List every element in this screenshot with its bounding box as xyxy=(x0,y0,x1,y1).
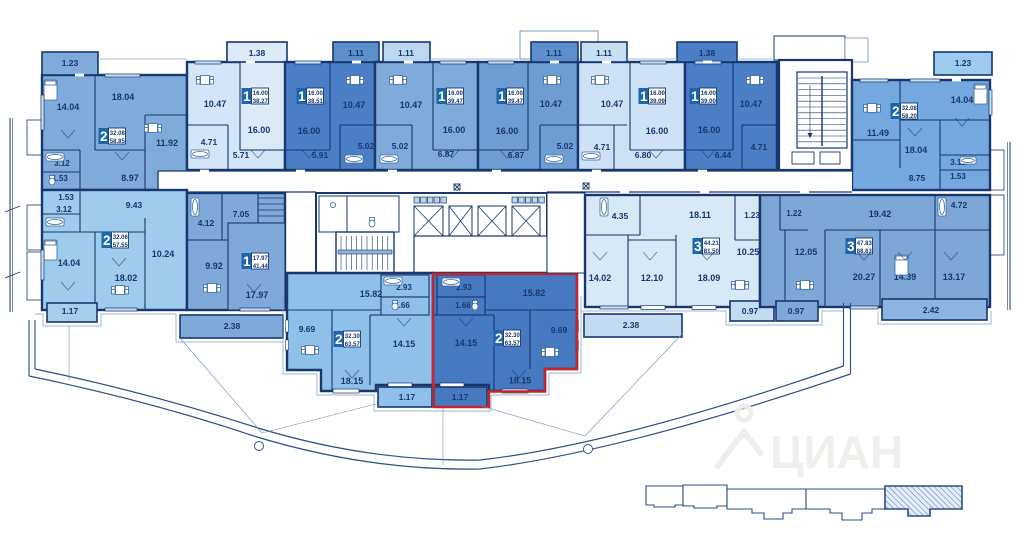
svg-text:1.22: 1.22 xyxy=(786,209,802,218)
svg-text:18.04: 18.04 xyxy=(905,145,928,155)
svg-text:1.11: 1.11 xyxy=(546,48,562,58)
svg-text:39.00: 39.00 xyxy=(701,99,717,105)
svg-text:39.09: 39.09 xyxy=(650,99,666,105)
svg-text:0.97: 0.97 xyxy=(788,306,805,316)
svg-text:1: 1 xyxy=(498,89,506,104)
svg-text:32.30: 32.30 xyxy=(505,333,521,339)
svg-text:32.08: 32.08 xyxy=(110,131,126,137)
svg-text:9.43: 9.43 xyxy=(126,200,143,210)
svg-text:58.85: 58.85 xyxy=(110,139,126,145)
svg-text:1.11: 1.11 xyxy=(398,48,414,58)
svg-text:44.21: 44.21 xyxy=(704,241,720,247)
svg-text:2: 2 xyxy=(495,331,503,346)
svg-text:16.00: 16.00 xyxy=(496,126,519,136)
svg-text:8.75: 8.75 xyxy=(909,173,926,183)
svg-text:1: 1 xyxy=(243,254,251,269)
svg-text:1.66: 1.66 xyxy=(455,301,471,310)
svg-text:16.00: 16.00 xyxy=(701,91,717,97)
svg-text:14.04: 14.04 xyxy=(58,258,81,268)
svg-text:16.00: 16.00 xyxy=(448,91,464,97)
svg-text:12.05: 12.05 xyxy=(795,247,818,257)
svg-text:18.11: 18.11 xyxy=(689,210,711,220)
svg-text:16.00: 16.00 xyxy=(650,91,666,97)
svg-text:12.10: 12.10 xyxy=(641,273,664,283)
svg-text:1: 1 xyxy=(243,89,251,104)
svg-text:15.82: 15.82 xyxy=(523,288,546,298)
svg-text:41.44: 41.44 xyxy=(253,264,269,270)
svg-text:10.47: 10.47 xyxy=(740,99,763,109)
svg-text:16.00: 16.00 xyxy=(253,91,269,97)
svg-text:1: 1 xyxy=(438,89,446,104)
svg-text:81.50: 81.50 xyxy=(704,249,720,255)
svg-text:5.02: 5.02 xyxy=(392,141,409,151)
svg-text:32.30: 32.30 xyxy=(345,334,361,340)
svg-text:14.04: 14.04 xyxy=(57,102,80,112)
svg-text:4.72: 4.72 xyxy=(951,200,968,210)
svg-text:3: 3 xyxy=(847,239,855,254)
svg-text:16.00: 16.00 xyxy=(308,91,324,97)
svg-text:58.20: 58.20 xyxy=(902,114,918,120)
svg-text:1.38: 1.38 xyxy=(249,48,266,58)
svg-text:16.00: 16.00 xyxy=(698,125,721,135)
svg-text:2.38: 2.38 xyxy=(224,321,241,331)
svg-text:18.15: 18.15 xyxy=(341,376,364,386)
svg-text:2: 2 xyxy=(335,332,343,347)
svg-text:10.47: 10.47 xyxy=(343,100,366,110)
svg-text:14.02: 14.02 xyxy=(589,273,612,283)
svg-text:9.92: 9.92 xyxy=(205,261,223,271)
svg-text:1.38: 1.38 xyxy=(699,48,716,58)
svg-text:2: 2 xyxy=(892,104,900,119)
svg-text:16.00: 16.00 xyxy=(298,126,321,136)
svg-text:2: 2 xyxy=(103,233,111,248)
svg-text:10.47: 10.47 xyxy=(540,99,563,109)
svg-text:9.69: 9.69 xyxy=(299,324,316,334)
svg-text:4.71: 4.71 xyxy=(751,142,768,152)
svg-text:38.27: 38.27 xyxy=(253,99,269,105)
svg-text:1.53: 1.53 xyxy=(58,193,74,202)
svg-text:6.80: 6.80 xyxy=(635,150,652,160)
svg-text:1.23: 1.23 xyxy=(955,58,972,68)
svg-text:14.15: 14.15 xyxy=(393,339,416,349)
svg-text:4.35: 4.35 xyxy=(612,211,629,221)
svg-text:11.92: 11.92 xyxy=(156,138,178,148)
svg-text:16.00: 16.00 xyxy=(646,126,669,136)
svg-text:16.00: 16.00 xyxy=(508,91,524,97)
svg-text:2.42: 2.42 xyxy=(923,305,940,315)
svg-text:4.71: 4.71 xyxy=(594,142,611,152)
svg-text:1: 1 xyxy=(640,89,648,104)
svg-text:1.23: 1.23 xyxy=(744,211,760,220)
svg-text:19.42: 19.42 xyxy=(869,209,892,219)
svg-text:10.47: 10.47 xyxy=(400,100,423,110)
svg-text:39.47: 39.47 xyxy=(448,99,464,105)
svg-text:1.17: 1.17 xyxy=(62,306,79,316)
svg-text:3.12: 3.12 xyxy=(56,205,72,214)
svg-text:16.00: 16.00 xyxy=(248,125,271,135)
svg-text:1.11: 1.11 xyxy=(348,48,364,58)
svg-text:9.69: 9.69 xyxy=(551,325,568,335)
svg-text:1.11: 1.11 xyxy=(596,48,612,58)
svg-text:47.83: 47.83 xyxy=(857,241,873,247)
svg-text:18.02: 18.02 xyxy=(115,273,138,283)
svg-text:88.63: 88.63 xyxy=(857,249,873,255)
svg-text:5.71: 5.71 xyxy=(233,150,250,160)
svg-text:10.47: 10.47 xyxy=(204,99,227,109)
svg-text:5.02: 5.02 xyxy=(358,141,375,151)
svg-text:2: 2 xyxy=(100,129,108,144)
svg-text:4.12: 4.12 xyxy=(198,218,215,228)
svg-text:1.23: 1.23 xyxy=(62,58,79,68)
svg-text:10.25: 10.25 xyxy=(737,247,760,257)
svg-text:0.97: 0.97 xyxy=(742,306,759,316)
svg-text:32.06: 32.06 xyxy=(113,235,129,241)
svg-text:5.02: 5.02 xyxy=(557,141,574,151)
svg-text:14.04: 14.04 xyxy=(951,95,974,105)
svg-text:10.24: 10.24 xyxy=(152,249,175,259)
svg-text:20.27: 20.27 xyxy=(853,272,876,282)
svg-text:63.57: 63.57 xyxy=(505,341,521,347)
svg-text:63.57: 63.57 xyxy=(345,342,361,348)
svg-text:32.08: 32.08 xyxy=(902,106,918,112)
svg-text:8.97: 8.97 xyxy=(121,173,139,183)
svg-text:6.44: 6.44 xyxy=(715,150,732,160)
svg-text:13.17: 13.17 xyxy=(943,272,966,282)
svg-text:15.82: 15.82 xyxy=(360,289,383,299)
svg-text:6.87: 6.87 xyxy=(438,149,455,159)
svg-text:39.47: 39.47 xyxy=(508,99,524,105)
svg-text:7.05: 7.05 xyxy=(233,209,250,219)
svg-text:6.87: 6.87 xyxy=(508,150,525,160)
svg-text:14.15: 14.15 xyxy=(455,338,478,348)
svg-text:2.38: 2.38 xyxy=(623,320,640,330)
svg-text:4.71: 4.71 xyxy=(201,137,218,147)
svg-text:1.53: 1.53 xyxy=(950,172,966,181)
svg-text:ЦИАН: ЦИАН xyxy=(770,426,903,478)
svg-text:1: 1 xyxy=(691,89,699,104)
svg-text:17.97: 17.97 xyxy=(253,256,269,262)
svg-text:17.97: 17.97 xyxy=(246,290,269,300)
svg-text:18.04: 18.04 xyxy=(112,92,135,102)
svg-text:18.09: 18.09 xyxy=(698,273,721,283)
svg-text:3: 3 xyxy=(694,239,702,254)
svg-text:38.51: 38.51 xyxy=(308,99,324,105)
svg-text:5.91: 5.91 xyxy=(312,150,329,160)
svg-text:10.47: 10.47 xyxy=(601,99,624,109)
svg-text:1.17: 1.17 xyxy=(399,392,416,402)
svg-text:16.00: 16.00 xyxy=(443,125,466,135)
svg-text:57.55: 57.55 xyxy=(113,243,129,249)
svg-text:1.17: 1.17 xyxy=(452,392,469,402)
svg-text:1: 1 xyxy=(298,89,306,104)
svg-text:11.49: 11.49 xyxy=(867,128,889,138)
